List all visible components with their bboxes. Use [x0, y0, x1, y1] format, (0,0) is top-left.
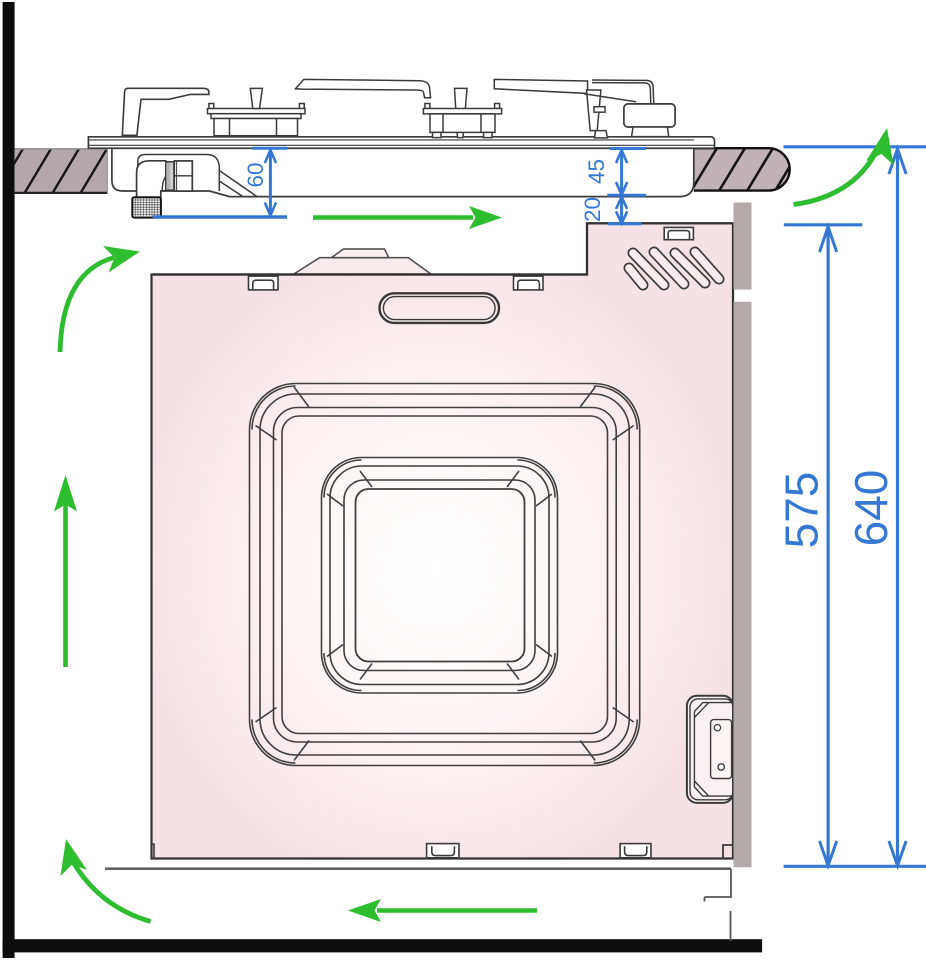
svg-text:45: 45	[584, 159, 609, 184]
svg-text:575: 575	[776, 472, 828, 549]
svg-text:60: 60	[243, 162, 268, 187]
svg-text:20: 20	[580, 197, 605, 222]
svg-text:640: 640	[845, 470, 897, 547]
